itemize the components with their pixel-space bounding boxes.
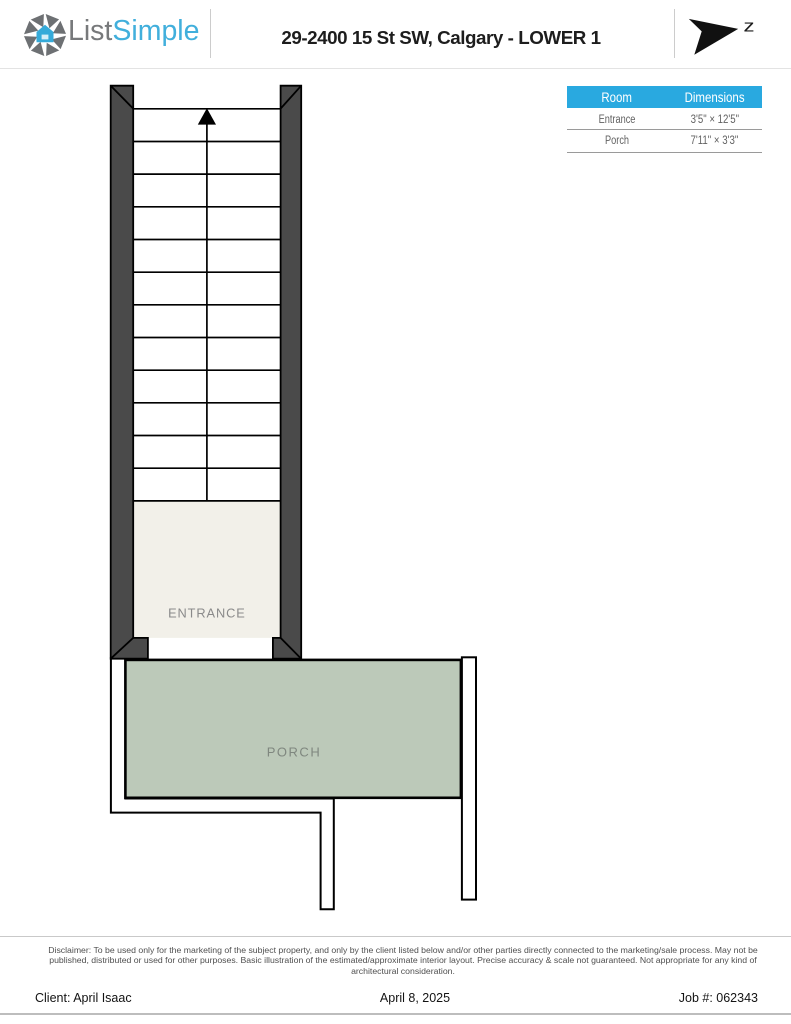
svg-text:PORCH: PORCH: [267, 745, 321, 760]
svg-text:ENTRANCE: ENTRANCE: [168, 605, 246, 620]
